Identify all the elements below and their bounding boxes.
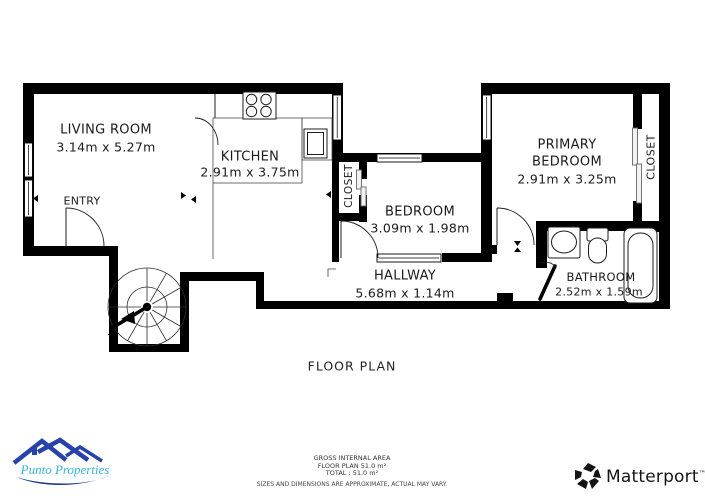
stove-icon xyxy=(243,92,276,119)
spiral-staircase-icon xyxy=(108,268,186,346)
disclaimer-text: SIZES AND DIMENSIONS ARE APPROXIMATE, AC… xyxy=(257,481,447,489)
toilet-icon xyxy=(587,228,608,263)
punto-properties-wordmark: Punto Properties xyxy=(6,462,124,478)
matterport-wordmark: Matterport™ xyxy=(606,467,705,487)
chimney-shape xyxy=(32,446,37,455)
window xyxy=(25,180,33,217)
matterport-trademark: ™ xyxy=(699,469,705,477)
closet-middle-label: CLOSET xyxy=(343,164,355,208)
bathroom-label: BATHROOM xyxy=(567,270,636,284)
primary-bedroom-label-line2: BEDROOM xyxy=(532,155,602,170)
hallway-label: HALLWAY xyxy=(374,269,436,284)
sliding-door xyxy=(633,128,642,203)
kitchen-counters xyxy=(213,92,336,277)
bathroom-dims: 2.52m x 1.59m xyxy=(555,286,643,299)
primary-bedroom-label-line1: PRIMARY xyxy=(537,138,596,153)
punto-properties-logo xyxy=(14,440,102,463)
closet-primary-label: CLOSET xyxy=(645,134,658,180)
bedroom-dims: 3.09m x 1.98m xyxy=(370,221,469,236)
total-area-line: TOTAL : 51.0 m² xyxy=(257,470,447,478)
kitchen-sink-icon xyxy=(304,129,327,158)
entry-label: ENTRY xyxy=(63,195,100,208)
kitchen-dims: 2.91m x 3.75m xyxy=(200,165,299,180)
fridge-door-arc xyxy=(195,94,218,145)
window xyxy=(483,95,492,140)
punto-roof-icon xyxy=(14,440,102,463)
window xyxy=(25,143,33,177)
window xyxy=(377,154,422,162)
bedroom-label: BEDROOM xyxy=(385,205,455,220)
sink-icon xyxy=(548,227,580,258)
primary-bedroom-door-arc xyxy=(497,208,534,245)
window xyxy=(333,95,342,140)
matterport-logo-icon xyxy=(575,463,601,489)
floor-plan-drawing xyxy=(0,0,705,498)
matterport-name: Matterport xyxy=(606,467,699,487)
hallway-dims: 5.68m x 1.14m xyxy=(355,286,454,301)
primary-bedroom-dims: 2.91m x 3.25m xyxy=(517,172,616,187)
window xyxy=(377,254,441,262)
entry-door-arc xyxy=(66,208,104,246)
kitchen-label: KITCHEN xyxy=(221,150,279,165)
living-room-dims: 3.14m x 5.27m xyxy=(56,140,155,155)
living-room-label: LIVING ROOM xyxy=(60,123,152,138)
floor-plan-page: LIVING ROOM 3.14m x 5.27m KITCHEN 2.91m … xyxy=(0,0,705,498)
floor-plan-title: FLOOR PLAN xyxy=(308,359,397,374)
area-summary: GROSS INTERNAL AREA FLOOR PLAN 51.0 m² T… xyxy=(257,455,447,488)
